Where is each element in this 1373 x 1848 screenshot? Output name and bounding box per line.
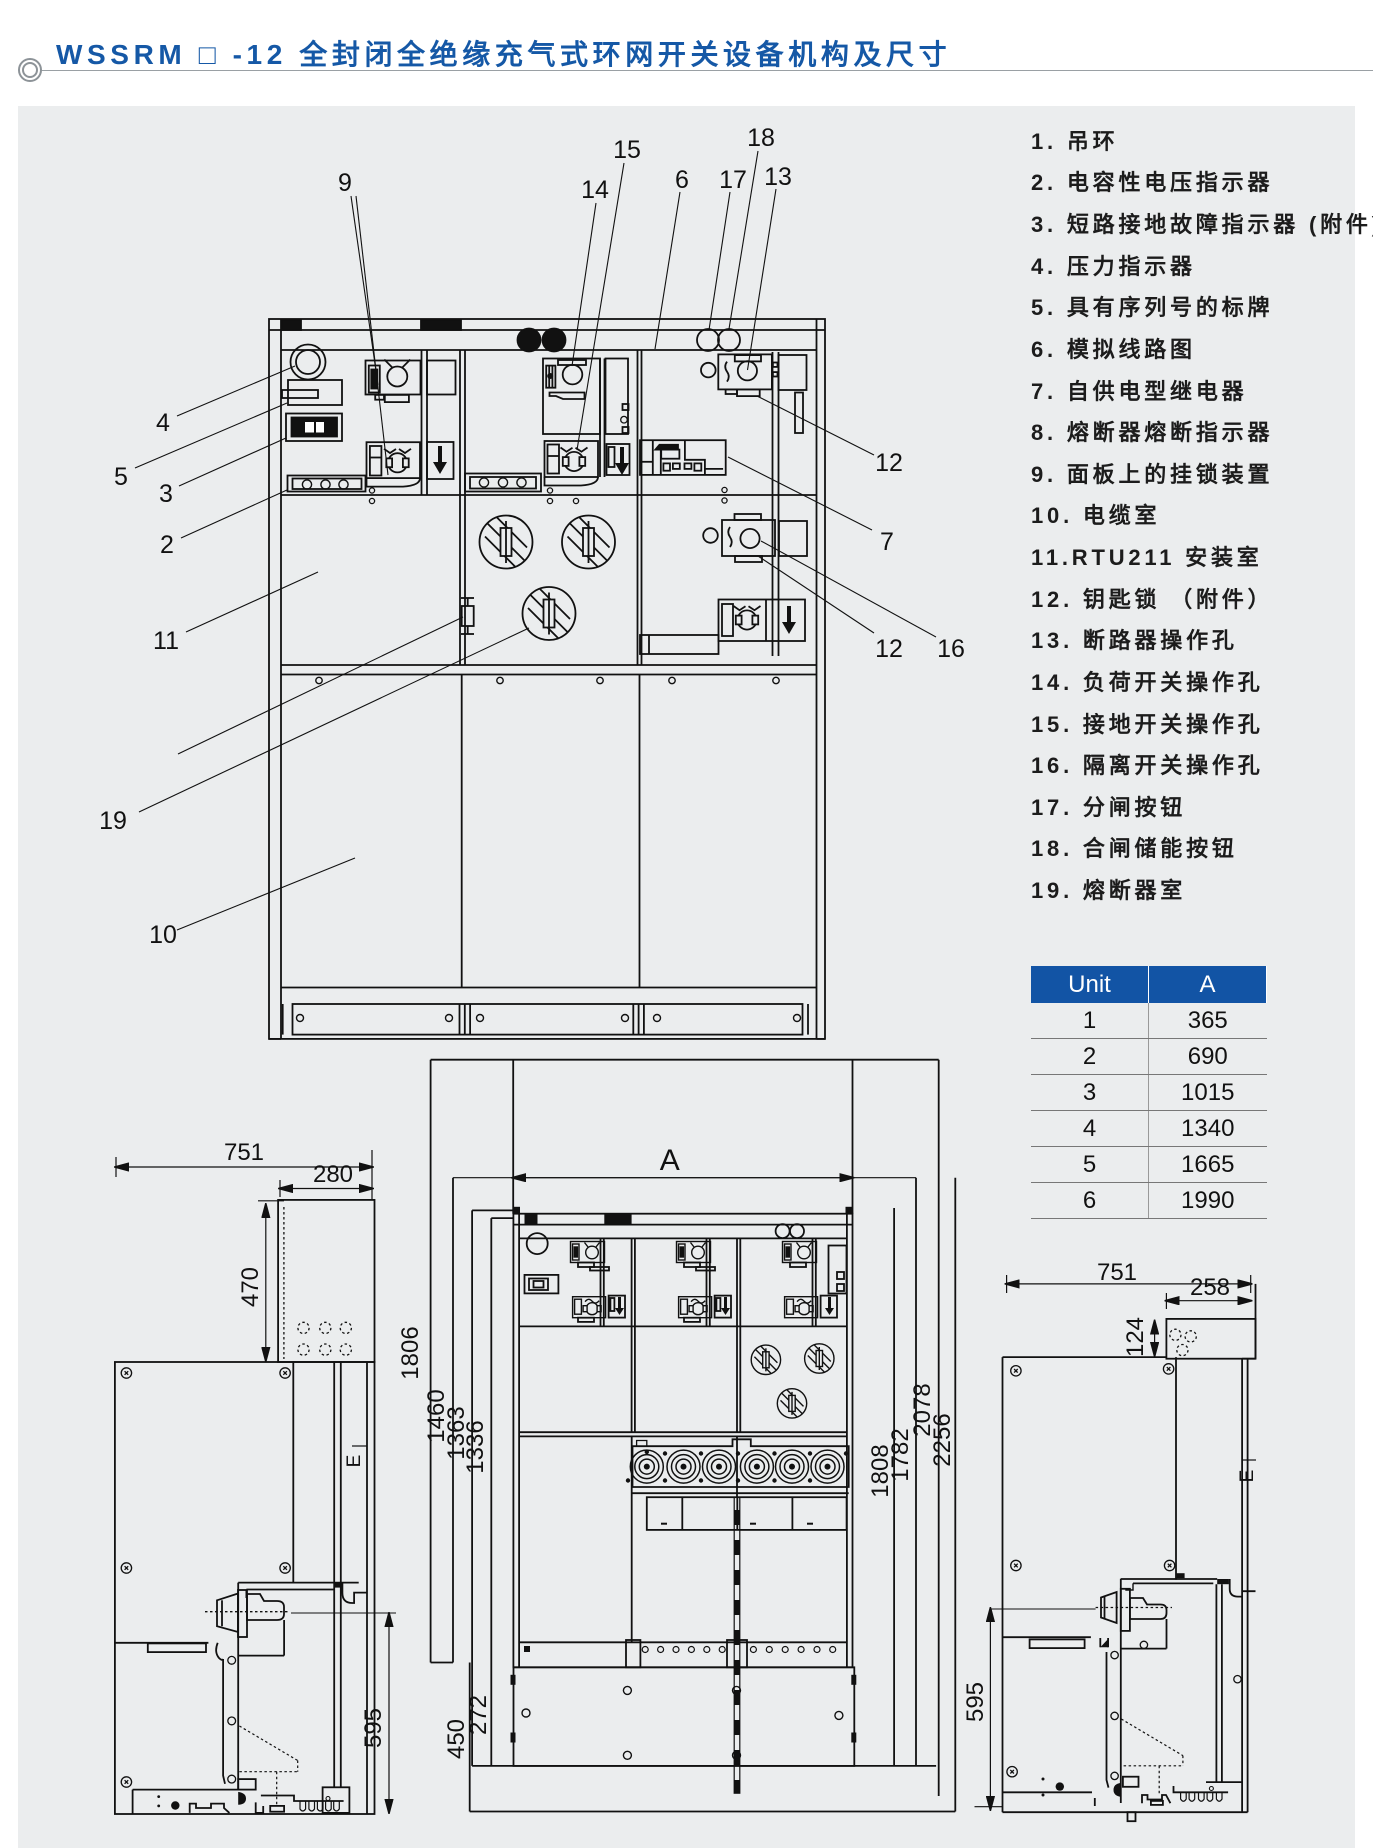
- svg-text:4: 4: [156, 409, 170, 437]
- svg-text:595: 595: [962, 1682, 989, 1722]
- svg-text:12: 12: [875, 635, 903, 663]
- svg-text:280: 280: [313, 1161, 353, 1188]
- svg-text:1806: 1806: [397, 1326, 424, 1379]
- svg-text:470: 470: [237, 1267, 264, 1307]
- svg-text:2256: 2256: [929, 1413, 956, 1466]
- svg-text:E: E: [1237, 1470, 1258, 1483]
- svg-text:12: 12: [875, 449, 903, 477]
- svg-text:15: 15: [613, 136, 641, 164]
- svg-text:17: 17: [719, 166, 747, 194]
- svg-text:1336: 1336: [462, 1420, 489, 1473]
- svg-text:595: 595: [360, 1708, 387, 1748]
- svg-text:E: E: [344, 1455, 365, 1468]
- svg-text:751: 751: [1097, 1259, 1137, 1286]
- svg-text:16: 16: [937, 635, 965, 663]
- svg-text:19: 19: [99, 807, 127, 835]
- svg-text:13: 13: [764, 163, 792, 191]
- svg-text:124: 124: [1122, 1317, 1149, 1357]
- svg-text:5: 5: [114, 463, 128, 491]
- svg-text:3: 3: [159, 480, 173, 508]
- svg-text:9: 9: [338, 169, 352, 197]
- svg-text:A: A: [660, 1144, 680, 1177]
- svg-text:2: 2: [160, 531, 174, 559]
- svg-text:18: 18: [747, 124, 775, 152]
- svg-text:7: 7: [880, 528, 894, 556]
- svg-text:11: 11: [153, 627, 179, 655]
- svg-text:14: 14: [581, 176, 609, 204]
- svg-text:751: 751: [224, 1139, 264, 1166]
- svg-text:10: 10: [149, 921, 177, 949]
- svg-text:6: 6: [675, 166, 689, 194]
- svg-text:258: 258: [1190, 1274, 1230, 1301]
